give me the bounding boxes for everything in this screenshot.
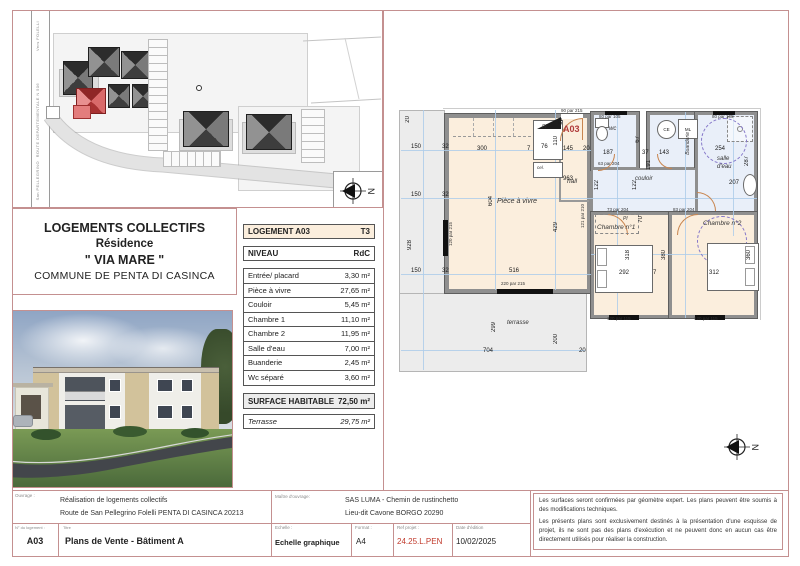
disclaimer-box: Les surfaces seront confirmées par géomè…	[533, 493, 783, 550]
room-name: Pièce à vivre	[248, 286, 291, 295]
opening-label: 120 par 115	[607, 317, 631, 322]
survey-point-icon	[196, 85, 202, 91]
titleblock-div2	[530, 490, 531, 557]
room-name: Buanderie	[248, 358, 282, 367]
opening-label: 80 par 105	[712, 115, 734, 120]
issue-date-cell: Date d'édition 10/02/2025	[452, 523, 530, 557]
project-title-line2: Résidence	[96, 238, 154, 250]
opening-label: 83 par 204	[673, 208, 695, 213]
driveway	[13, 311, 233, 488]
project-title-line1: LOGEMENTS COLLECTIFS	[44, 221, 205, 235]
table-total-row: SURFACE HABITABLE 72,50 m²	[243, 393, 375, 409]
total-label: SURFACE HABITABLE	[248, 397, 334, 406]
room-area: 5,45 m²	[345, 300, 370, 309]
plan-sheet: { "colors": { "frame_pink": "#c49090", "…	[0, 0, 800, 566]
table-level-row: NIVEAU RdC	[243, 246, 375, 261]
scale-value: Echelle graphique	[275, 538, 340, 547]
unit-type: T3	[361, 227, 370, 236]
north-arrow-box: N	[333, 171, 383, 208]
unit-number-value: A03	[12, 536, 58, 546]
table-row: Chambre 111,10 m²	[244, 313, 374, 328]
unit-table: LOGEMENT A03 T3 NIVEAU RdC Entrée/ placa…	[243, 224, 375, 429]
room-area: 3,60 m²	[345, 373, 370, 382]
level-label: NIVEAU	[248, 249, 278, 258]
room-area: 11,10 m²	[341, 315, 370, 324]
terrace-label: Terrasse	[248, 417, 277, 426]
moa-label: Maître d'ouvrage:	[275, 494, 335, 499]
format-value: A4	[356, 537, 366, 546]
project-title-box: LOGEMENTS COLLECTIFS Résidence " VIA MAR…	[12, 208, 237, 295]
building	[183, 111, 229, 147]
opening-label: 80 par 105	[599, 115, 621, 120]
title-cell: Titre Plans de Vente - Bâtiment A	[58, 523, 271, 557]
table-header-row: LOGEMENT A03 T3	[243, 224, 375, 239]
building	[121, 51, 149, 79]
room-name: Wc séparé	[248, 373, 284, 382]
parking-strip	[301, 109, 325, 163]
ouvrage-block: Ouvrage : Réalisation de logements colle…	[12, 490, 271, 523]
outbuilding	[46, 106, 60, 119]
moa-line2: Lieu-dit Cavone BORGO 20290	[345, 507, 458, 520]
bush	[113, 426, 147, 437]
table-row: Wc séparé3,60 m²	[244, 371, 374, 386]
room-name: Chambre 1	[248, 315, 285, 324]
room-name: Chambre 2	[248, 329, 285, 338]
table-rooms-block: Entrée/ placard3,30 m² Pièce à vivre27,6…	[243, 268, 375, 386]
table-row: Pièce à vivre27,65 m²	[244, 284, 374, 299]
room-name: Salle d'eau	[248, 344, 285, 353]
scale-label: Echelle :	[275, 525, 292, 530]
issue-date-label: Date d'édition	[456, 525, 483, 530]
opening-label: 121 par 210	[581, 204, 586, 228]
building	[88, 47, 120, 77]
room-area: 11,95 m²	[341, 329, 370, 338]
plan-openings: 90 par 21580 par 10580 par 10563 par 204…	[395, 104, 765, 376]
building	[108, 84, 130, 108]
unit-number-cell: N° du logement : A03	[12, 523, 58, 557]
ouvrage-line1: Réalisation de logements collectifs	[60, 494, 244, 507]
access-road	[13, 11, 383, 208]
building	[246, 114, 292, 150]
opening-label: 90 par 215	[561, 109, 583, 114]
parking-strip	[163, 151, 221, 167]
project-ref-label: Ref projet :	[397, 525, 419, 530]
moa-block: Maître d'ouvrage: SAS LUMA - Chemin de r…	[271, 490, 530, 523]
issue-date-value: 10/02/2025	[456, 537, 496, 546]
project-ref-cell: Ref projet : 24.25.L.PEN	[393, 523, 452, 557]
title-value: Plans de Vente - Bâtiment A	[65, 536, 184, 546]
site-plan: Vers FOLELLI ROUTE DEPARTEMENTALE N 506 …	[12, 10, 383, 208]
project-title-line3: " VIA MARE "	[85, 253, 164, 267]
plan-north-arrow-icon: N	[722, 432, 770, 462]
ouvrage-label: Ouvrage :	[15, 493, 35, 498]
table-row: Chambre 211,95 m²	[244, 327, 374, 342]
column-divider	[383, 10, 384, 490]
ouvrage-line2: Route de San Pellegrino Folelli PENTA DI…	[60, 507, 244, 520]
ouvrage-text: Réalisation de logements collectifs Rout…	[60, 494, 244, 520]
unit-id: LOGEMENT A03	[248, 227, 310, 236]
opening-label: 73 par 204	[607, 208, 629, 213]
moa-line1: SAS LUMA - Chemin de rustinchetto	[345, 494, 458, 507]
bush	[181, 428, 209, 438]
north-arrow-icon: N	[338, 176, 383, 206]
opening-label: 120 par 215	[449, 222, 454, 246]
table-row: Couloir5,45 m²	[244, 298, 374, 313]
room-area: 7,00 m²	[345, 344, 370, 353]
project-ref-value: 24.25.L.PEN	[397, 537, 442, 546]
project-title-line4: COMMUNE DE PENTA DI CASINCA	[34, 270, 215, 282]
room-area: 2,45 m²	[345, 358, 370, 367]
format-cell: Format : A4	[351, 523, 393, 557]
svg-text:N: N	[750, 444, 760, 451]
total-value: 72,50 m²	[338, 397, 370, 406]
floor-plan: CE ML Pièce à vivre hall A03 Pl cel. wc …	[395, 104, 765, 376]
bush	[31, 429, 61, 440]
title-label: Titre	[63, 525, 71, 530]
opening-label: 120 par 115	[694, 317, 718, 322]
room-name: Couloir	[248, 300, 272, 309]
format-label: Format :	[355, 525, 372, 530]
room-area: 3,30 m²	[345, 271, 370, 280]
table-row: Buanderie2,45 m²	[244, 356, 374, 371]
terrace-value: 29,75 m²	[340, 417, 370, 426]
table-terrace-row: Terrasse 29,75 m²	[243, 414, 375, 429]
moa-text: SAS LUMA - Chemin de rustinchetto Lieu-d…	[345, 494, 458, 520]
building-render-photo	[12, 310, 233, 488]
building-highlighted-wing	[73, 105, 91, 119]
scale-cell: Echelle : Echelle graphique	[271, 523, 351, 557]
room-area: 27,65 m²	[340, 286, 370, 295]
unit-number-label: N° du logement :	[15, 525, 45, 530]
table-row: Salle d'eau7,00 m²	[244, 342, 374, 357]
opening-label: 220 par 215	[501, 282, 525, 287]
level-value: RdC	[354, 249, 370, 258]
disclaimer-paragraph-2: Les présents plans sont exclusivement de…	[539, 518, 777, 546]
parking-strip	[148, 39, 168, 151]
table-row: Entrée/ placard3,30 m²	[244, 269, 374, 284]
disclaimer-paragraph-1: Les surfaces seront confirmées par géomè…	[539, 497, 777, 516]
svg-text:N: N	[366, 188, 376, 195]
room-name: Entrée/ placard	[248, 271, 299, 280]
opening-label: 63 par 204	[598, 162, 620, 167]
